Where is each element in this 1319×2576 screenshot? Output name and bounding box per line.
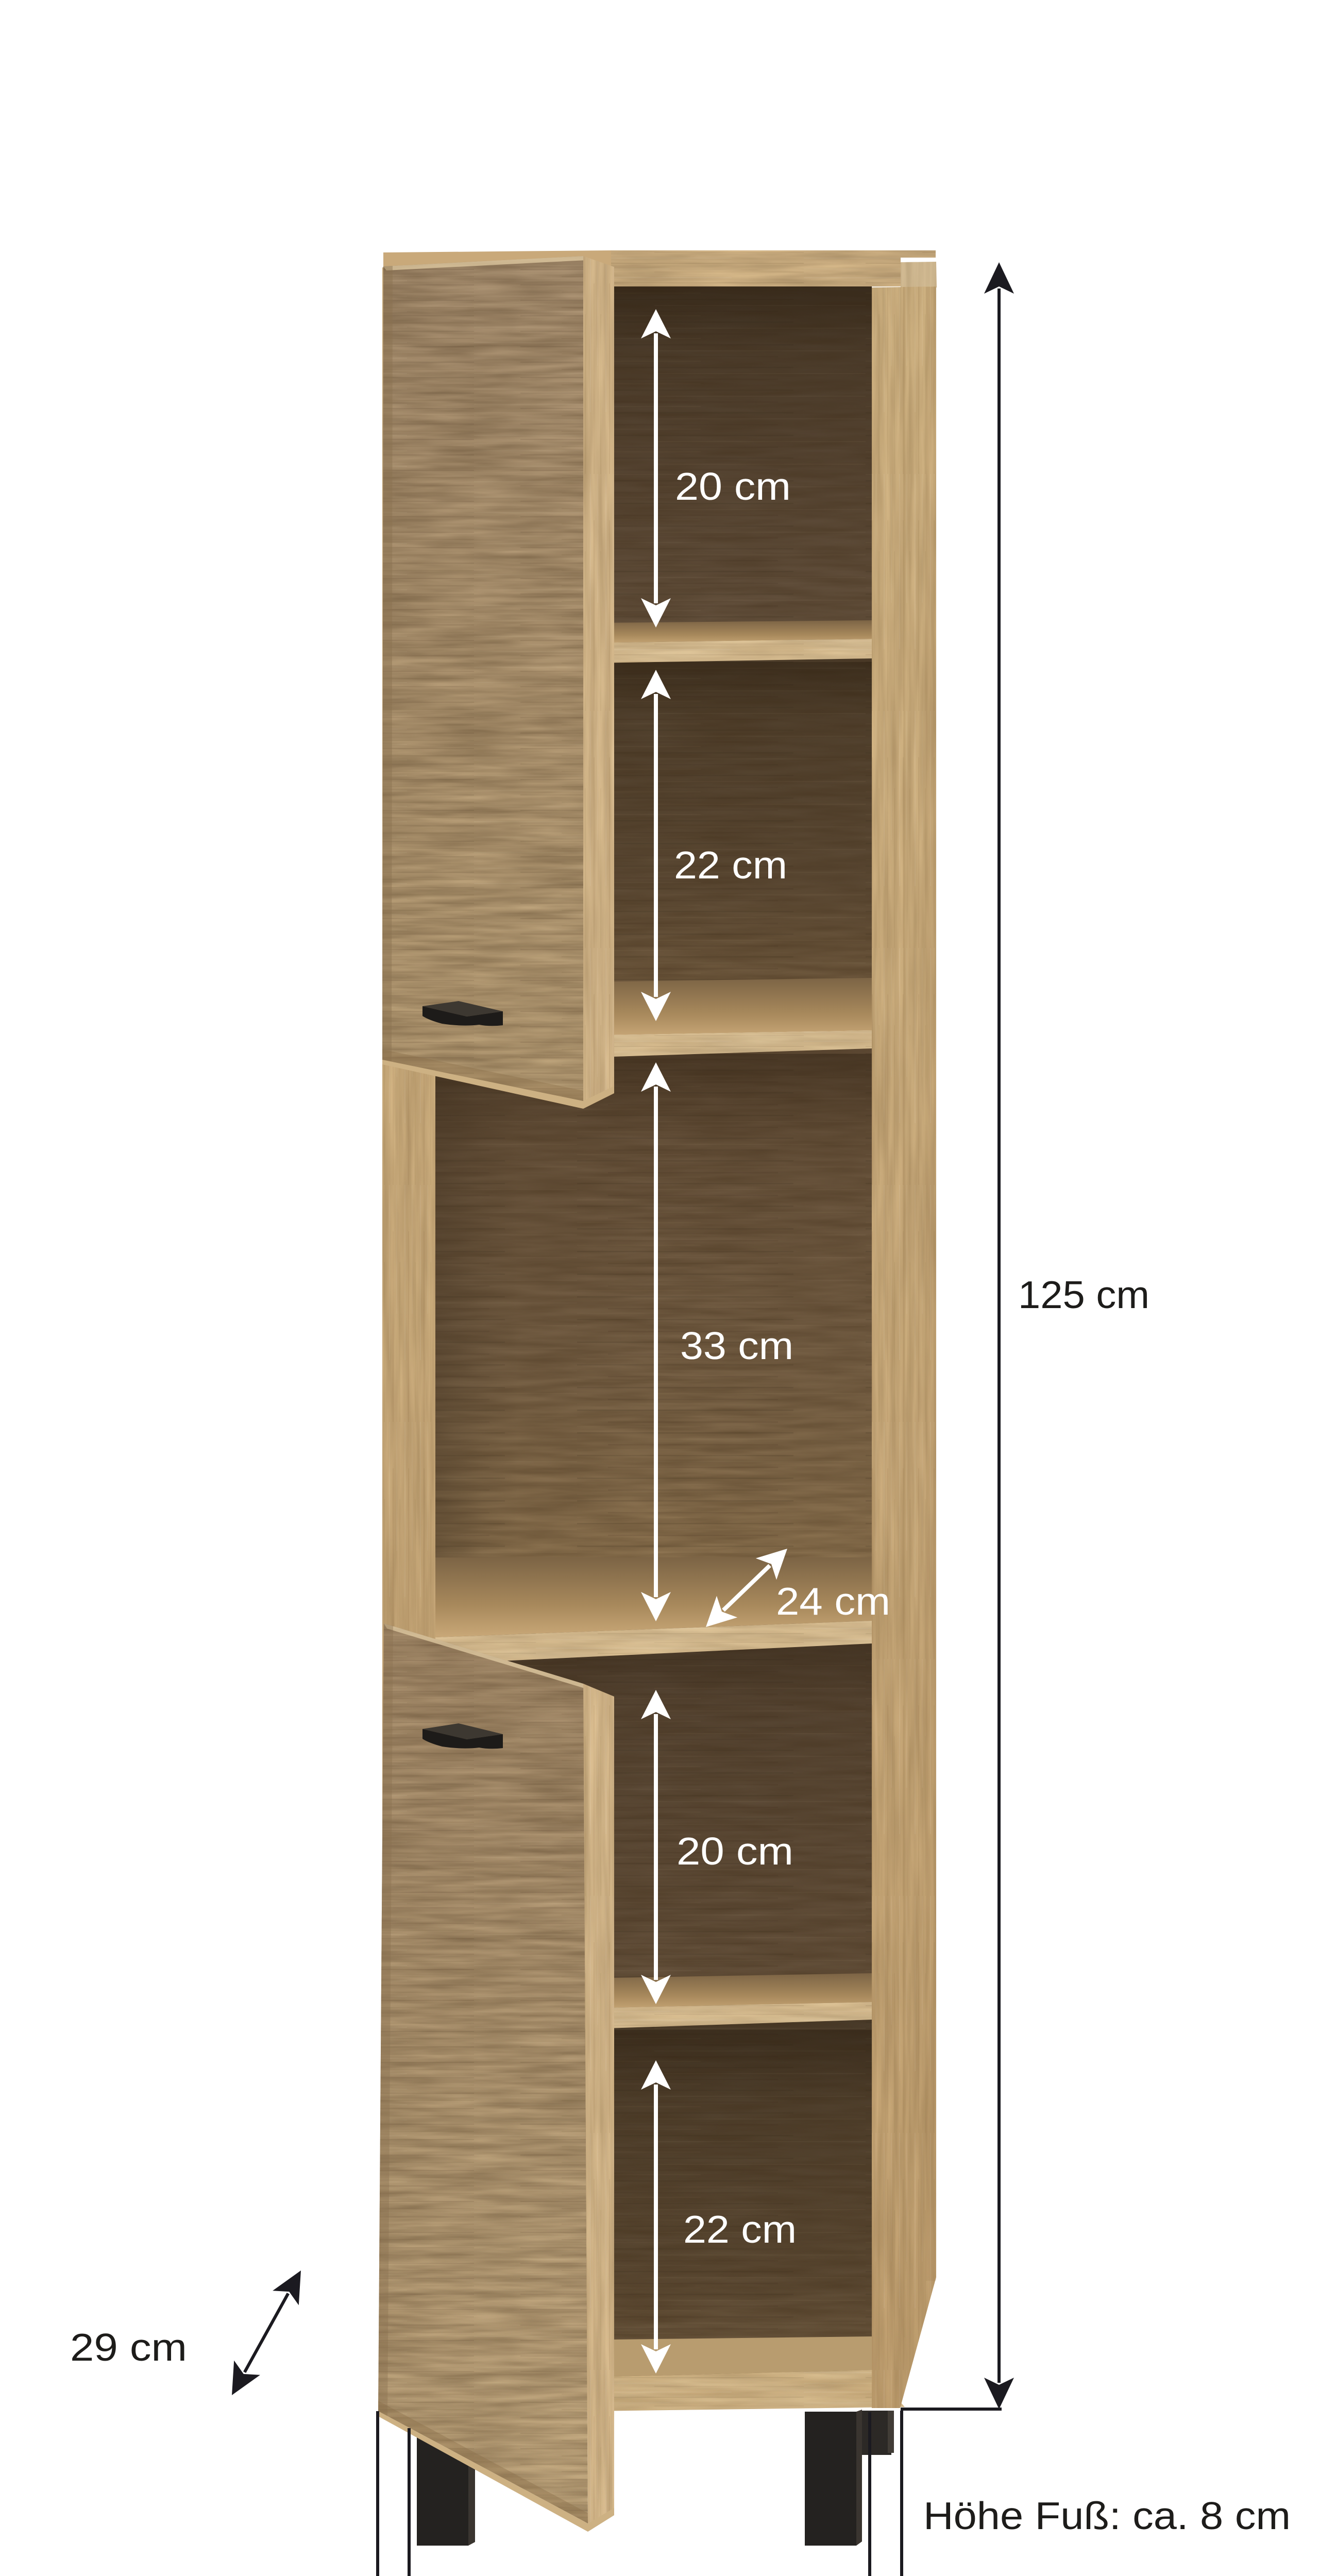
svg-text:Höhe Fuß: ca. 8 cm: Höhe Fuß: ca. 8 cm (923, 2494, 1291, 2537)
svg-text:33 cm: 33 cm (680, 1324, 793, 1367)
svg-text:22 cm: 22 cm (683, 2208, 797, 2251)
svg-text:22 cm: 22 cm (674, 843, 787, 887)
svg-text:20 cm: 20 cm (677, 1829, 793, 1873)
svg-text:29 cm: 29 cm (70, 2326, 187, 2369)
svg-text:20 cm: 20 cm (675, 465, 791, 508)
svg-text:24 cm: 24 cm (776, 1580, 890, 1623)
svg-text:125 cm: 125 cm (1018, 1273, 1149, 1316)
